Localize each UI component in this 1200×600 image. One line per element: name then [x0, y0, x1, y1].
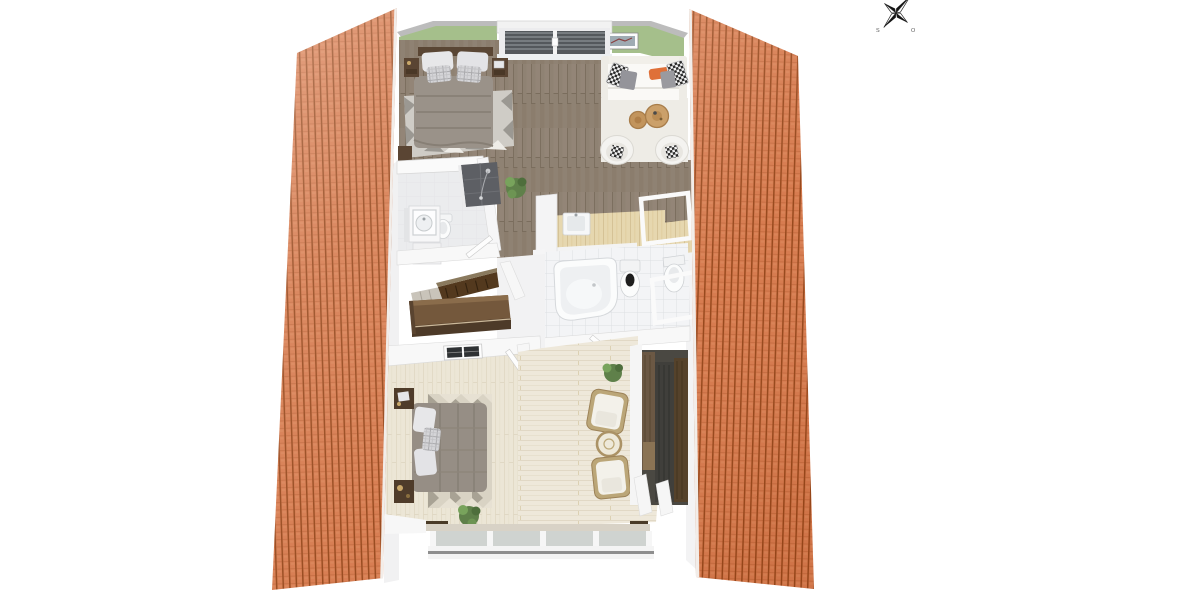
svg-text:O: O: [911, 28, 916, 34]
svg-text:S: S: [876, 28, 880, 34]
